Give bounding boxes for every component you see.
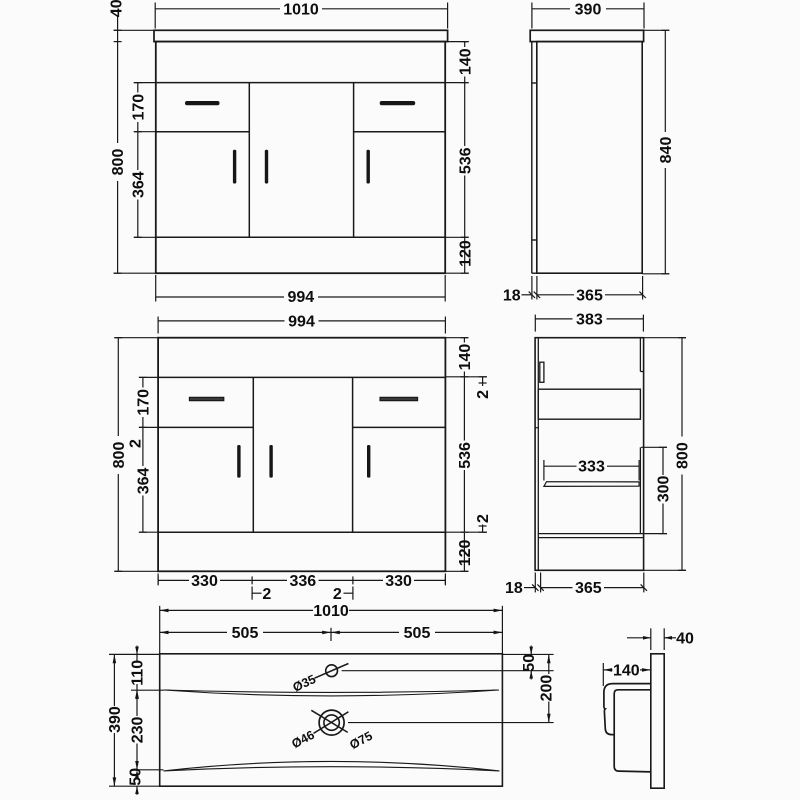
svg-text:536: 536 — [457, 442, 474, 469]
svg-text:50: 50 — [127, 768, 144, 786]
svg-text:230: 230 — [130, 716, 147, 743]
svg-text:505: 505 — [232, 625, 259, 642]
svg-text:800: 800 — [111, 442, 128, 469]
svg-text:2: 2 — [262, 586, 271, 603]
svg-text:336: 336 — [289, 573, 316, 590]
svg-text:140: 140 — [613, 662, 640, 679]
svg-text:994: 994 — [287, 289, 314, 306]
svg-text:18: 18 — [503, 287, 521, 304]
svg-text:800: 800 — [110, 149, 127, 176]
svg-text:50: 50 — [521, 654, 538, 672]
svg-text:330: 330 — [191, 573, 218, 590]
svg-text:2: 2 — [475, 514, 492, 523]
svg-text:18: 18 — [505, 580, 523, 597]
svg-text:840: 840 — [658, 137, 675, 164]
svg-text:330: 330 — [385, 573, 412, 590]
svg-text:800: 800 — [675, 442, 692, 469]
svg-text:120: 120 — [457, 539, 474, 566]
svg-text:40: 40 — [676, 630, 694, 647]
svg-text:140: 140 — [457, 344, 474, 371]
svg-text:365: 365 — [575, 580, 602, 597]
svg-text:1010: 1010 — [283, 1, 319, 18]
svg-text:140: 140 — [457, 48, 474, 75]
svg-text:300: 300 — [656, 475, 673, 502]
svg-text:505: 505 — [404, 625, 431, 642]
svg-text:364: 364 — [130, 171, 147, 198]
svg-text:40: 40 — [108, 0, 125, 17]
svg-text:Ø35: Ø35 — [291, 672, 318, 695]
svg-text:120: 120 — [457, 240, 474, 267]
svg-text:333: 333 — [578, 459, 605, 476]
svg-text:2: 2 — [128, 439, 145, 448]
svg-text:390: 390 — [107, 706, 124, 733]
svg-text:170: 170 — [136, 389, 153, 416]
svg-text:200: 200 — [539, 675, 556, 702]
svg-text:383: 383 — [576, 311, 603, 328]
svg-text:Ø75: Ø75 — [347, 729, 374, 752]
svg-text:994: 994 — [288, 313, 315, 330]
svg-text:2: 2 — [333, 586, 342, 603]
svg-text:170: 170 — [130, 94, 147, 121]
svg-text:110: 110 — [130, 660, 147, 686]
svg-text:390: 390 — [575, 1, 602, 18]
svg-text:536: 536 — [457, 147, 474, 174]
svg-text:364: 364 — [136, 467, 153, 494]
svg-text:365: 365 — [576, 287, 603, 304]
svg-text:Ø46: Ø46 — [289, 728, 316, 751]
svg-text:2: 2 — [475, 390, 492, 399]
svg-text:1010: 1010 — [313, 603, 349, 620]
